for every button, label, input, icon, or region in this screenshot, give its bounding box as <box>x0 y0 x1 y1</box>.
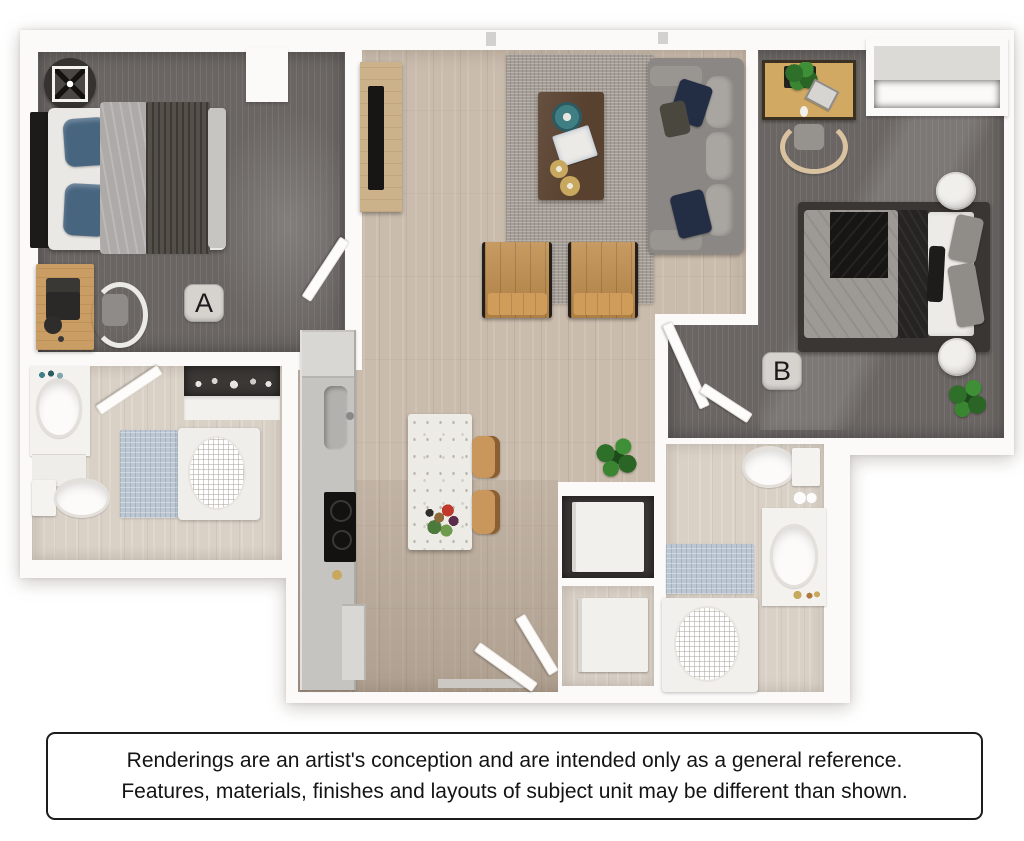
decor-gold-dish-icon <box>550 160 568 178</box>
toilet-b-bowl-icon <box>742 446 796 488</box>
floor-plant-icon <box>590 434 642 482</box>
tub-a-basin-icon <box>188 436 246 510</box>
barstool <box>472 436 500 478</box>
bed-b-lumbar-pillow <box>927 246 946 303</box>
bed-a-folded-edge <box>208 108 226 248</box>
island-flowers-icon <box>420 496 468 544</box>
accent-chair <box>568 242 638 318</box>
sink-faucet-icon <box>346 412 354 420</box>
mouse-icon <box>800 106 808 117</box>
bedroom-a-light-patch <box>210 110 340 340</box>
toilet-a-bowl-icon <box>54 478 110 518</box>
bedroom-a-label-badge: A <box>184 284 224 322</box>
desk-lamp-a-icon <box>44 316 62 334</box>
accent-chair-seat <box>487 293 547 315</box>
accent-chair <box>482 242 552 318</box>
kitchen-sink-icon <box>324 386 348 450</box>
sofa-back-cushion <box>706 76 734 128</box>
bed-b-runner-dark <box>898 210 928 338</box>
toilet-paper-icon <box>792 490 818 506</box>
toilet-b-tank <box>792 448 820 486</box>
closet-b-shelf <box>874 46 1000 80</box>
vanity-sink-b <box>770 524 818 588</box>
bed-a-duvet-gray <box>100 102 148 254</box>
vanity-a-toiletries-icon <box>36 368 66 382</box>
bedroom-a-wall-notch <box>246 48 288 102</box>
laptop-a-icon <box>46 278 80 320</box>
accent-chair-seat <box>573 293 633 315</box>
nightstand <box>936 172 976 210</box>
linen-closet-a-shelf <box>184 396 280 420</box>
desk-chair-a-seat <box>102 294 128 326</box>
disclaimer-box: Renderings are an artist's conception an… <box>46 732 983 820</box>
burner-icon <box>330 500 352 522</box>
sofa-back-cushion <box>706 132 734 180</box>
vanity-sink-a <box>36 378 82 438</box>
bed-a-throw-dark <box>146 102 210 254</box>
tv-icon <box>368 86 384 190</box>
dishwasher-icon <box>342 604 366 680</box>
toilet-a-tank <box>32 480 56 516</box>
ceiling-fan-icon <box>44 58 96 110</box>
disclaimer-line-2: Features, materials, finishes and layout… <box>121 776 907 807</box>
nightstand <box>938 338 976 376</box>
wall-joint-tick <box>486 32 496 46</box>
decor-gold-dish-icon <box>560 176 580 196</box>
washer-icon <box>572 502 644 572</box>
refrigerator-icon <box>302 332 354 378</box>
bed-a-headboard <box>30 112 50 248</box>
linen-closet-a <box>184 366 280 396</box>
bath-mat-a <box>120 430 178 518</box>
shower-b-pan-icon <box>674 606 740 682</box>
dryer-icon <box>578 598 648 672</box>
bed-b-quilt-panel <box>830 212 888 278</box>
bedroom-b-plant-icon <box>944 376 990 422</box>
bath-mat-b <box>666 544 754 594</box>
disclaimer-line-1: Renderings are an artist's conception an… <box>127 745 903 776</box>
vanity-b-items-icon <box>790 588 820 602</box>
fan-blades-icon <box>52 66 88 102</box>
desk-chair-b-seat <box>794 124 824 150</box>
burner-icon <box>332 530 352 550</box>
wall-joint-tick <box>658 32 668 44</box>
gold-knob-icon <box>332 570 342 580</box>
barstool <box>472 490 500 534</box>
closet-b-hanging-clothes-icon <box>874 80 1000 108</box>
floorplan-page: A B Renderings are an artist's conceptio… <box>0 0 1024 841</box>
bedroom-b-label-badge: B <box>762 352 802 390</box>
